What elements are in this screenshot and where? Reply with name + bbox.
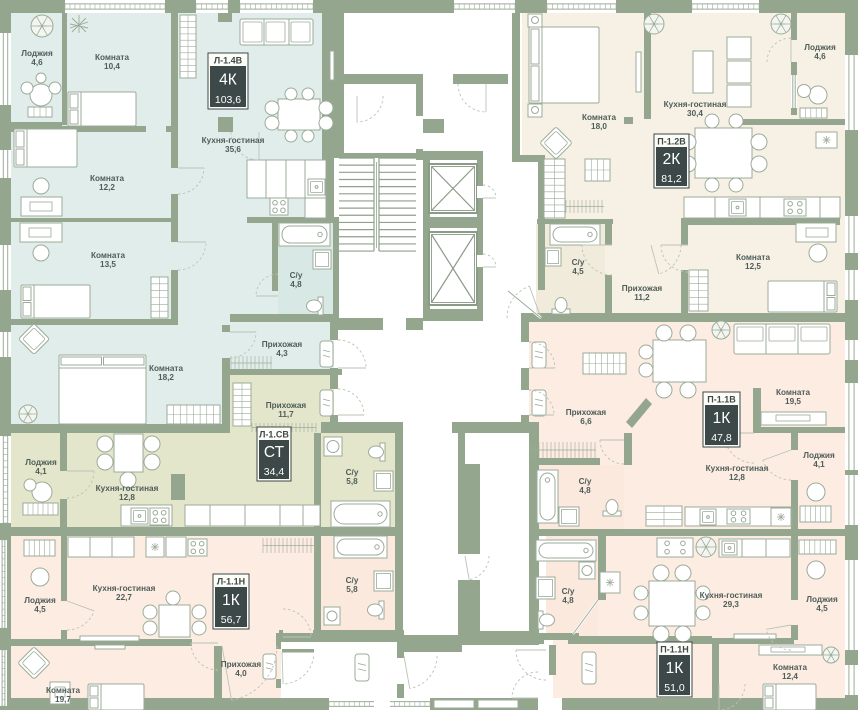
- svg-text:4,8: 4,8: [290, 280, 302, 289]
- svg-text:6,6: 6,6: [580, 417, 592, 426]
- svg-text:Комната: Комната: [582, 113, 616, 122]
- svg-text:Л-1.СВ: Л-1.СВ: [259, 430, 289, 440]
- svg-text:30,4: 30,4: [687, 109, 703, 118]
- svg-text:29,3: 29,3: [723, 600, 739, 609]
- svg-text:Комната: Комната: [773, 663, 807, 672]
- svg-text:81,2: 81,2: [661, 173, 682, 185]
- svg-text:С/у: С/у: [562, 587, 575, 596]
- svg-text:5,8: 5,8: [346, 585, 358, 594]
- svg-text:4,6: 4,6: [31, 58, 43, 67]
- svg-text:Прихожая: Прихожая: [566, 408, 607, 417]
- svg-text:19,7: 19,7: [55, 695, 71, 704]
- svg-text:103,6: 103,6: [215, 94, 241, 106]
- svg-text:Комната: Комната: [91, 251, 125, 260]
- svg-text:Л-1.1Н: Л-1.1Н: [217, 577, 245, 587]
- svg-text:Кухня-гостиная: Кухня-гостиная: [202, 136, 265, 145]
- svg-text:Прихожая: Прихожая: [622, 284, 663, 293]
- svg-text:Комната: Комната: [149, 364, 183, 373]
- svg-text:4,3: 4,3: [276, 349, 288, 358]
- svg-text:34,4: 34,4: [264, 466, 285, 478]
- svg-text:П-1.2В: П-1.2В: [657, 137, 686, 147]
- svg-text:Прихожая: Прихожая: [262, 340, 303, 349]
- svg-text:35,6: 35,6: [225, 145, 241, 154]
- svg-text:4,5: 4,5: [572, 267, 584, 276]
- svg-text:СТ: СТ: [264, 444, 285, 461]
- svg-text:56,7: 56,7: [221, 614, 242, 626]
- svg-text:С/у: С/у: [290, 271, 303, 280]
- svg-text:4,6: 4,6: [814, 52, 826, 61]
- svg-text:51,0: 51,0: [664, 682, 685, 694]
- svg-text:Л-1.4В: Л-1.4В: [214, 56, 243, 66]
- svg-text:18,2: 18,2: [158, 373, 174, 382]
- svg-text:Лоджия: Лоджия: [25, 458, 57, 467]
- svg-text:Кухня-гостиная: Кухня-гостиная: [664, 100, 727, 109]
- svg-text:11,7: 11,7: [278, 410, 294, 419]
- svg-text:22,7: 22,7: [116, 593, 132, 602]
- svg-text:4,1: 4,1: [35, 467, 47, 476]
- svg-text:47,8: 47,8: [711, 432, 732, 444]
- svg-text:Прихожая: Прихожая: [266, 401, 307, 410]
- svg-text:12,8: 12,8: [729, 473, 745, 482]
- svg-text:1К: 1К: [666, 660, 684, 677]
- svg-text:Лоджия: Лоджия: [804, 43, 836, 52]
- svg-text:Кухня-гостиная: Кухня-гостиная: [706, 464, 769, 473]
- svg-text:12,4: 12,4: [782, 672, 798, 681]
- svg-text:4,8: 4,8: [562, 596, 574, 605]
- svg-text:П-1.1Н: П-1.1Н: [660, 645, 688, 655]
- svg-text:Кухня-гостиная: Кухня-гостиная: [96, 484, 159, 493]
- svg-text:4,8: 4,8: [579, 486, 591, 495]
- svg-text:11,2: 11,2: [634, 293, 650, 302]
- svg-text:19,5: 19,5: [785, 397, 801, 406]
- svg-text:4,5: 4,5: [816, 604, 828, 613]
- svg-text:Комната: Комната: [736, 253, 770, 262]
- svg-text:С/у: С/у: [346, 576, 359, 585]
- svg-text:5,8: 5,8: [346, 477, 358, 486]
- svg-text:С/у: С/у: [572, 258, 585, 267]
- svg-text:Лоджия: Лоджия: [24, 596, 56, 605]
- svg-text:2К: 2К: [663, 151, 681, 168]
- svg-text:Лоджия: Лоджия: [803, 451, 835, 460]
- svg-text:Комната: Комната: [90, 174, 124, 183]
- svg-text:Лоджия: Лоджия: [21, 49, 53, 58]
- svg-text:Комната: Комната: [95, 53, 129, 62]
- svg-text:Кухня-гостиная: Кухня-гостиная: [93, 584, 156, 593]
- svg-text:Кухня-гостиная: Кухня-гостиная: [700, 591, 763, 600]
- svg-text:4,1: 4,1: [813, 460, 825, 469]
- svg-text:Лоджия: Лоджия: [806, 595, 838, 604]
- svg-text:12,5: 12,5: [745, 262, 761, 271]
- svg-text:1К: 1К: [222, 592, 240, 609]
- svg-text:4,0: 4,0: [235, 669, 247, 678]
- svg-text:С/у: С/у: [579, 477, 592, 486]
- svg-text:4,5: 4,5: [34, 605, 46, 614]
- svg-text:П-1.1В: П-1.1В: [707, 395, 736, 405]
- svg-text:1К: 1К: [713, 410, 731, 427]
- svg-text:12,8: 12,8: [119, 493, 135, 502]
- svg-text:Прихожая: Прихожая: [221, 660, 262, 669]
- svg-text:18,0: 18,0: [591, 122, 607, 131]
- svg-text:С/у: С/у: [346, 468, 359, 477]
- svg-text:4К: 4К: [219, 71, 237, 88]
- svg-text:13,5: 13,5: [100, 260, 116, 269]
- svg-text:Комната: Комната: [46, 686, 80, 695]
- svg-text:Комната: Комната: [776, 388, 810, 397]
- svg-text:10,4: 10,4: [104, 62, 120, 71]
- svg-text:12,2: 12,2: [99, 183, 115, 192]
